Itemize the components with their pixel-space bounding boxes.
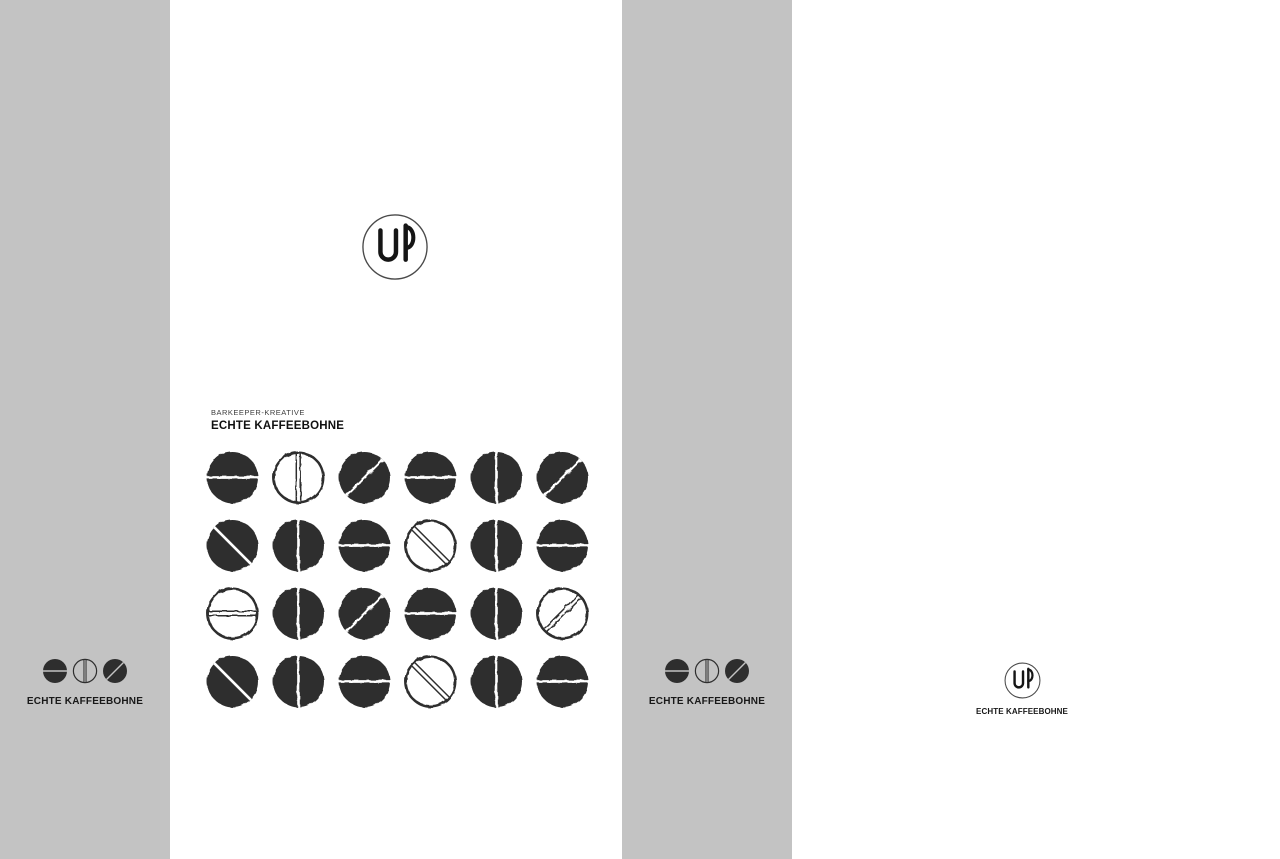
eyebrow-label: BARKEEPER-KREATIVE [211, 408, 305, 417]
coffee-bean-icon [403, 654, 458, 709]
coffee-bean-icon [271, 586, 326, 641]
coffee-bean-icon [469, 586, 524, 641]
coffee-bean-icon [205, 586, 260, 641]
coffee-bean-icon [337, 654, 392, 709]
brand-presentation-canvas: ECHTE KAFFEEBOHNE BARKEEPER-KREATIVE ECH… [0, 0, 1280, 859]
coffee-bean-icon [72, 658, 98, 684]
coffee-bean-icon [403, 450, 458, 505]
bean-logo-icons [42, 658, 128, 684]
bean-row [42, 658, 128, 684]
brand-wordmark: ECHTE KAFFEEBOHNE [649, 696, 765, 707]
bean-logo-lockup: ECHTE KAFFEEBOHNE [0, 658, 170, 707]
coffee-bean-icon [403, 586, 458, 641]
coffee-bean-icon [403, 518, 458, 573]
bean-row [205, 450, 590, 505]
coffee-bean-icon [337, 518, 392, 573]
coffee-bean-icon [535, 654, 590, 709]
bean-row [205, 586, 590, 641]
coffee-bean-icon [271, 518, 326, 573]
coffee-bean-icon [535, 586, 590, 641]
coffee-bean-icon [271, 654, 326, 709]
coffee-bean-icon [205, 654, 260, 709]
bean-row [205, 654, 590, 709]
coffee-bean-icon [724, 658, 750, 684]
panel-mid-gray: ECHTE KAFFEEBOHNE [622, 0, 792, 859]
bean-pattern-grid [205, 450, 590, 709]
coffee-bean-icon [337, 586, 392, 641]
coffee-bean-icon [469, 450, 524, 505]
coffee-bean-icon [469, 518, 524, 573]
coffee-bean-icon [205, 450, 260, 505]
brand-wordmark: ECHTE KAFFEEBOHNE [27, 696, 143, 707]
coffee-bean-icon [102, 658, 128, 684]
brand-title: ECHTE KAFFEEBOHNE [211, 420, 344, 432]
panel-right-white: ECHTE KAFFEEBOHNE [792, 0, 1280, 859]
brand-wordmark: ECHTE KAFFEEBOHNE [976, 707, 1068, 716]
coffee-bean-icon [42, 658, 68, 684]
bean-logo-lockup: ECHTE KAFFEEBOHNE [622, 658, 792, 707]
coffee-bean-icon [205, 518, 260, 573]
coffee-bean-icon [664, 658, 690, 684]
coffee-bean-icon [337, 450, 392, 505]
bean-row [205, 518, 590, 573]
panel-left-gray: ECHTE KAFFEEBOHNE [0, 0, 170, 859]
up-monogram-icon [361, 213, 429, 281]
up-logo-lockup: ECHTE KAFFEEBOHNE [950, 662, 1094, 716]
panel-center-white: BARKEEPER-KREATIVE ECHTE KAFFEEBOHNE [170, 0, 622, 859]
bean-logo-icons [664, 658, 750, 684]
coffee-bean-icon [271, 450, 326, 505]
coffee-bean-icon [469, 654, 524, 709]
up-monogram-logo-small [1004, 662, 1041, 704]
coffee-bean-icon [535, 450, 590, 505]
up-monogram-icon [1004, 662, 1041, 699]
coffee-bean-icon [694, 658, 720, 684]
bean-row [664, 658, 750, 684]
up-monogram-logo [361, 213, 429, 281]
coffee-bean-icon [535, 518, 590, 573]
